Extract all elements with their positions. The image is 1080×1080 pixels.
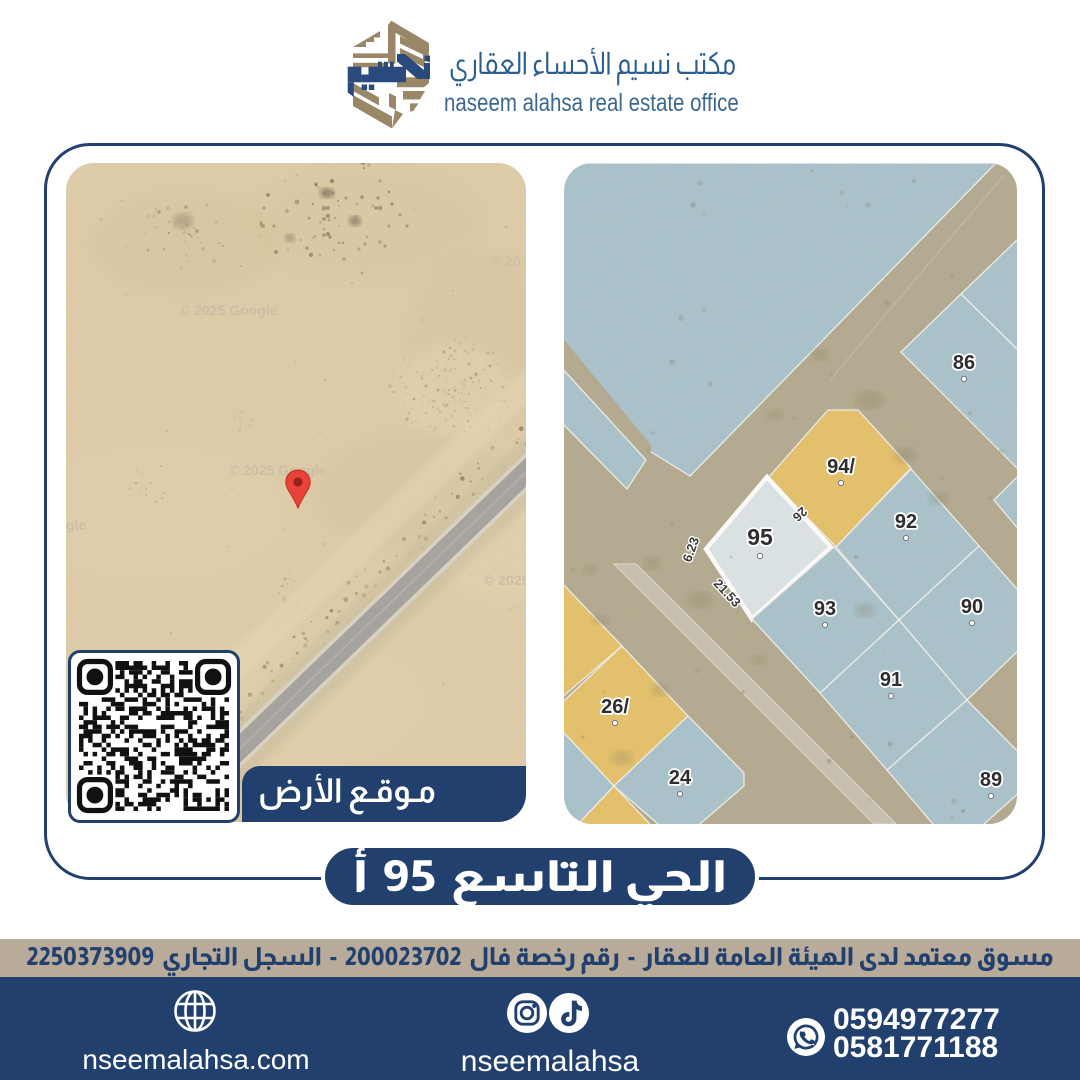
svg-text:© 20: © 20 xyxy=(491,253,521,269)
svg-text:© 2025 Google: © 2025 Google xyxy=(180,302,278,318)
svg-text:gle: gle xyxy=(66,517,86,533)
svg-text:86: 86 xyxy=(953,352,975,374)
svg-text:© 2025: © 2025 xyxy=(484,572,526,588)
svg-text:94/: 94/ xyxy=(827,456,855,478)
svg-text:26/: 26/ xyxy=(601,696,629,718)
svg-text:93: 93 xyxy=(814,598,836,620)
svg-text:91: 91 xyxy=(880,669,902,691)
svg-text:92: 92 xyxy=(895,511,917,533)
svg-text:90: 90 xyxy=(961,596,983,618)
svg-text:95: 95 xyxy=(747,524,773,550)
svg-text:89: 89 xyxy=(980,769,1002,791)
svg-text:24: 24 xyxy=(669,767,692,789)
